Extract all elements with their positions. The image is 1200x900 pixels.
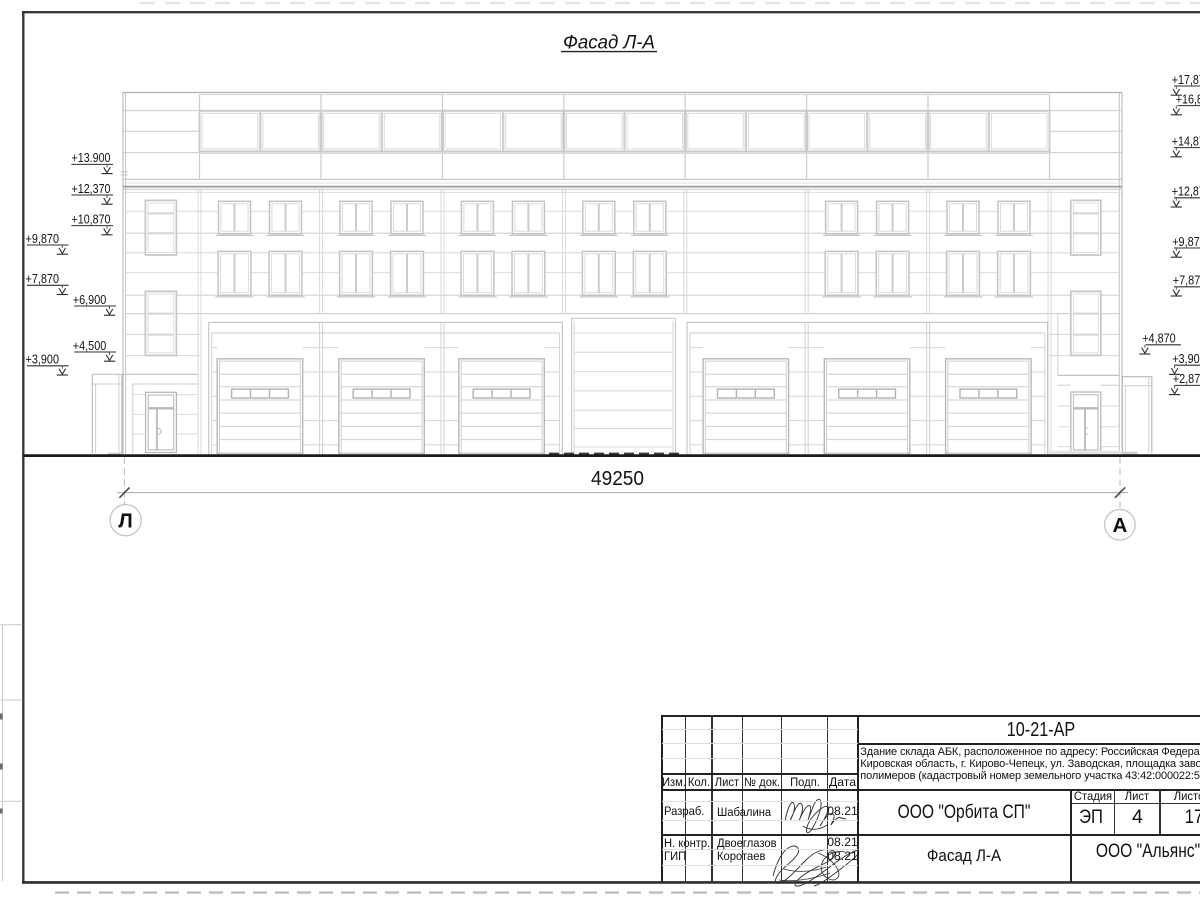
svg-text:+17,870: +17,870 bbox=[1172, 72, 1200, 87]
svg-text:Л: Л bbox=[118, 510, 132, 533]
svg-text:+14,870: +14,870 bbox=[1172, 133, 1200, 148]
svg-text:+12,870: +12,870 bbox=[1172, 184, 1200, 199]
svg-text:+13.900: +13.900 bbox=[72, 150, 111, 165]
svg-text:49250: 49250 bbox=[591, 467, 644, 490]
svg-text:+4,870: +4,870 bbox=[1142, 331, 1176, 346]
svg-text:+7,870: +7,870 bbox=[26, 271, 60, 286]
svg-text:+9,870: +9,870 bbox=[26, 231, 60, 246]
svg-text:+16,870: +16,870 bbox=[1176, 91, 1200, 106]
svg-text:+3,900: +3,900 bbox=[1172, 351, 1200, 366]
svg-text:+7,870: +7,870 bbox=[1173, 273, 1200, 288]
svg-text:+4,500: +4,500 bbox=[73, 338, 107, 353]
svg-text:+9,870: +9,870 bbox=[1172, 234, 1200, 249]
svg-text:А: А bbox=[1112, 514, 1127, 537]
svg-text:Фасад Л-А: Фасад Л-А bbox=[563, 32, 655, 54]
svg-text:+3,900: +3,900 bbox=[26, 352, 60, 367]
svg-text:+2,870: +2,870 bbox=[1173, 371, 1200, 386]
svg-text:+6,900: +6,900 bbox=[73, 292, 107, 307]
svg-text:+10,870: +10,870 bbox=[72, 211, 111, 226]
svg-text:+12,370: +12,370 bbox=[72, 181, 111, 196]
